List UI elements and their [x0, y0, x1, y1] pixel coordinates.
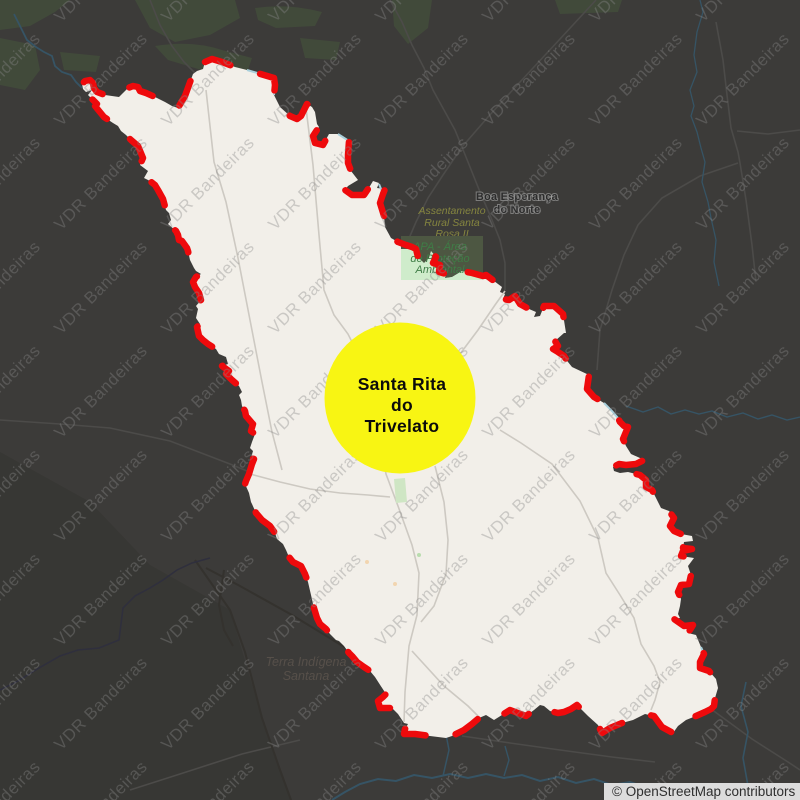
svg-text:© OpenStreetMap contributors: © OpenStreetMap contributors [612, 784, 796, 799]
svg-text:Santa Rita: Santa Rita [358, 374, 447, 394]
svg-text:Assentamento: Assentamento [417, 205, 485, 217]
svg-text:Trivelato: Trivelato [365, 416, 440, 436]
svg-text:Santana: Santana [283, 669, 330, 683]
svg-text:do: do [391, 395, 413, 415]
svg-text:Terra Indígena: Terra Indígena [266, 655, 347, 669]
